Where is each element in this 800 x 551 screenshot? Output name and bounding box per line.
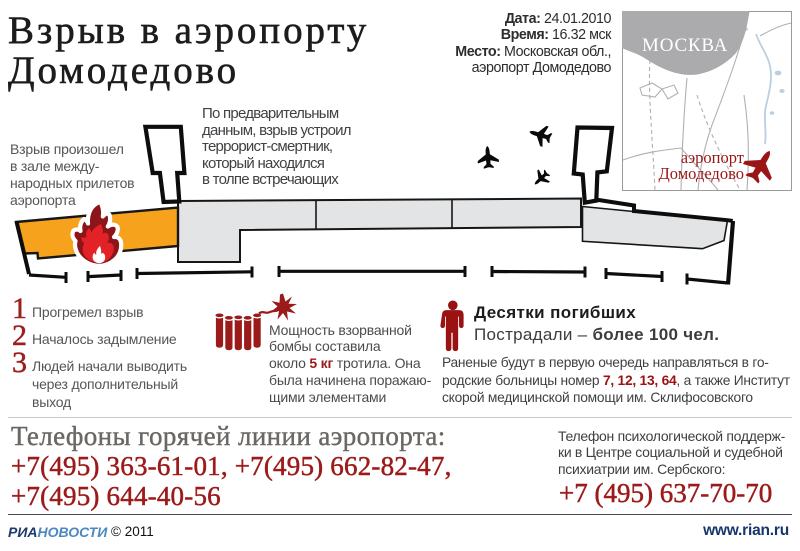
- svg-text:Домодедово: Домодедово: [659, 164, 744, 183]
- svg-text:МОСКВА: МОСКВА: [642, 35, 728, 56]
